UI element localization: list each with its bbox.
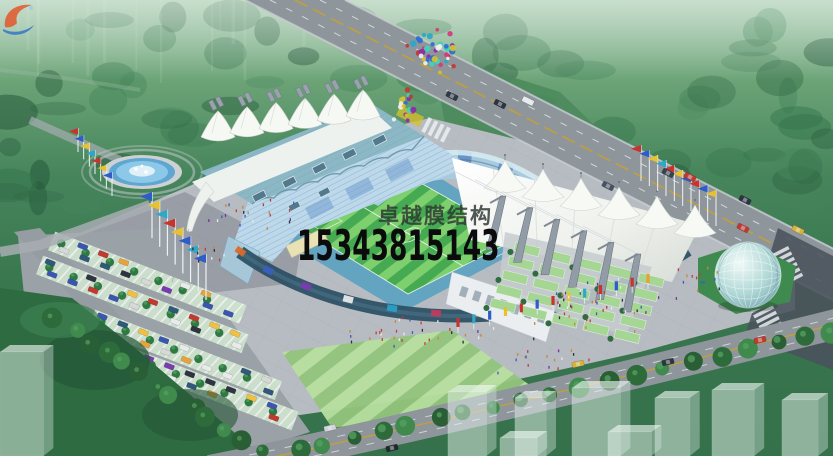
stadium-rendering-canvas <box>0 0 833 456</box>
stadium-rendering: 卓越膜结构 15343815143 <box>0 0 833 456</box>
